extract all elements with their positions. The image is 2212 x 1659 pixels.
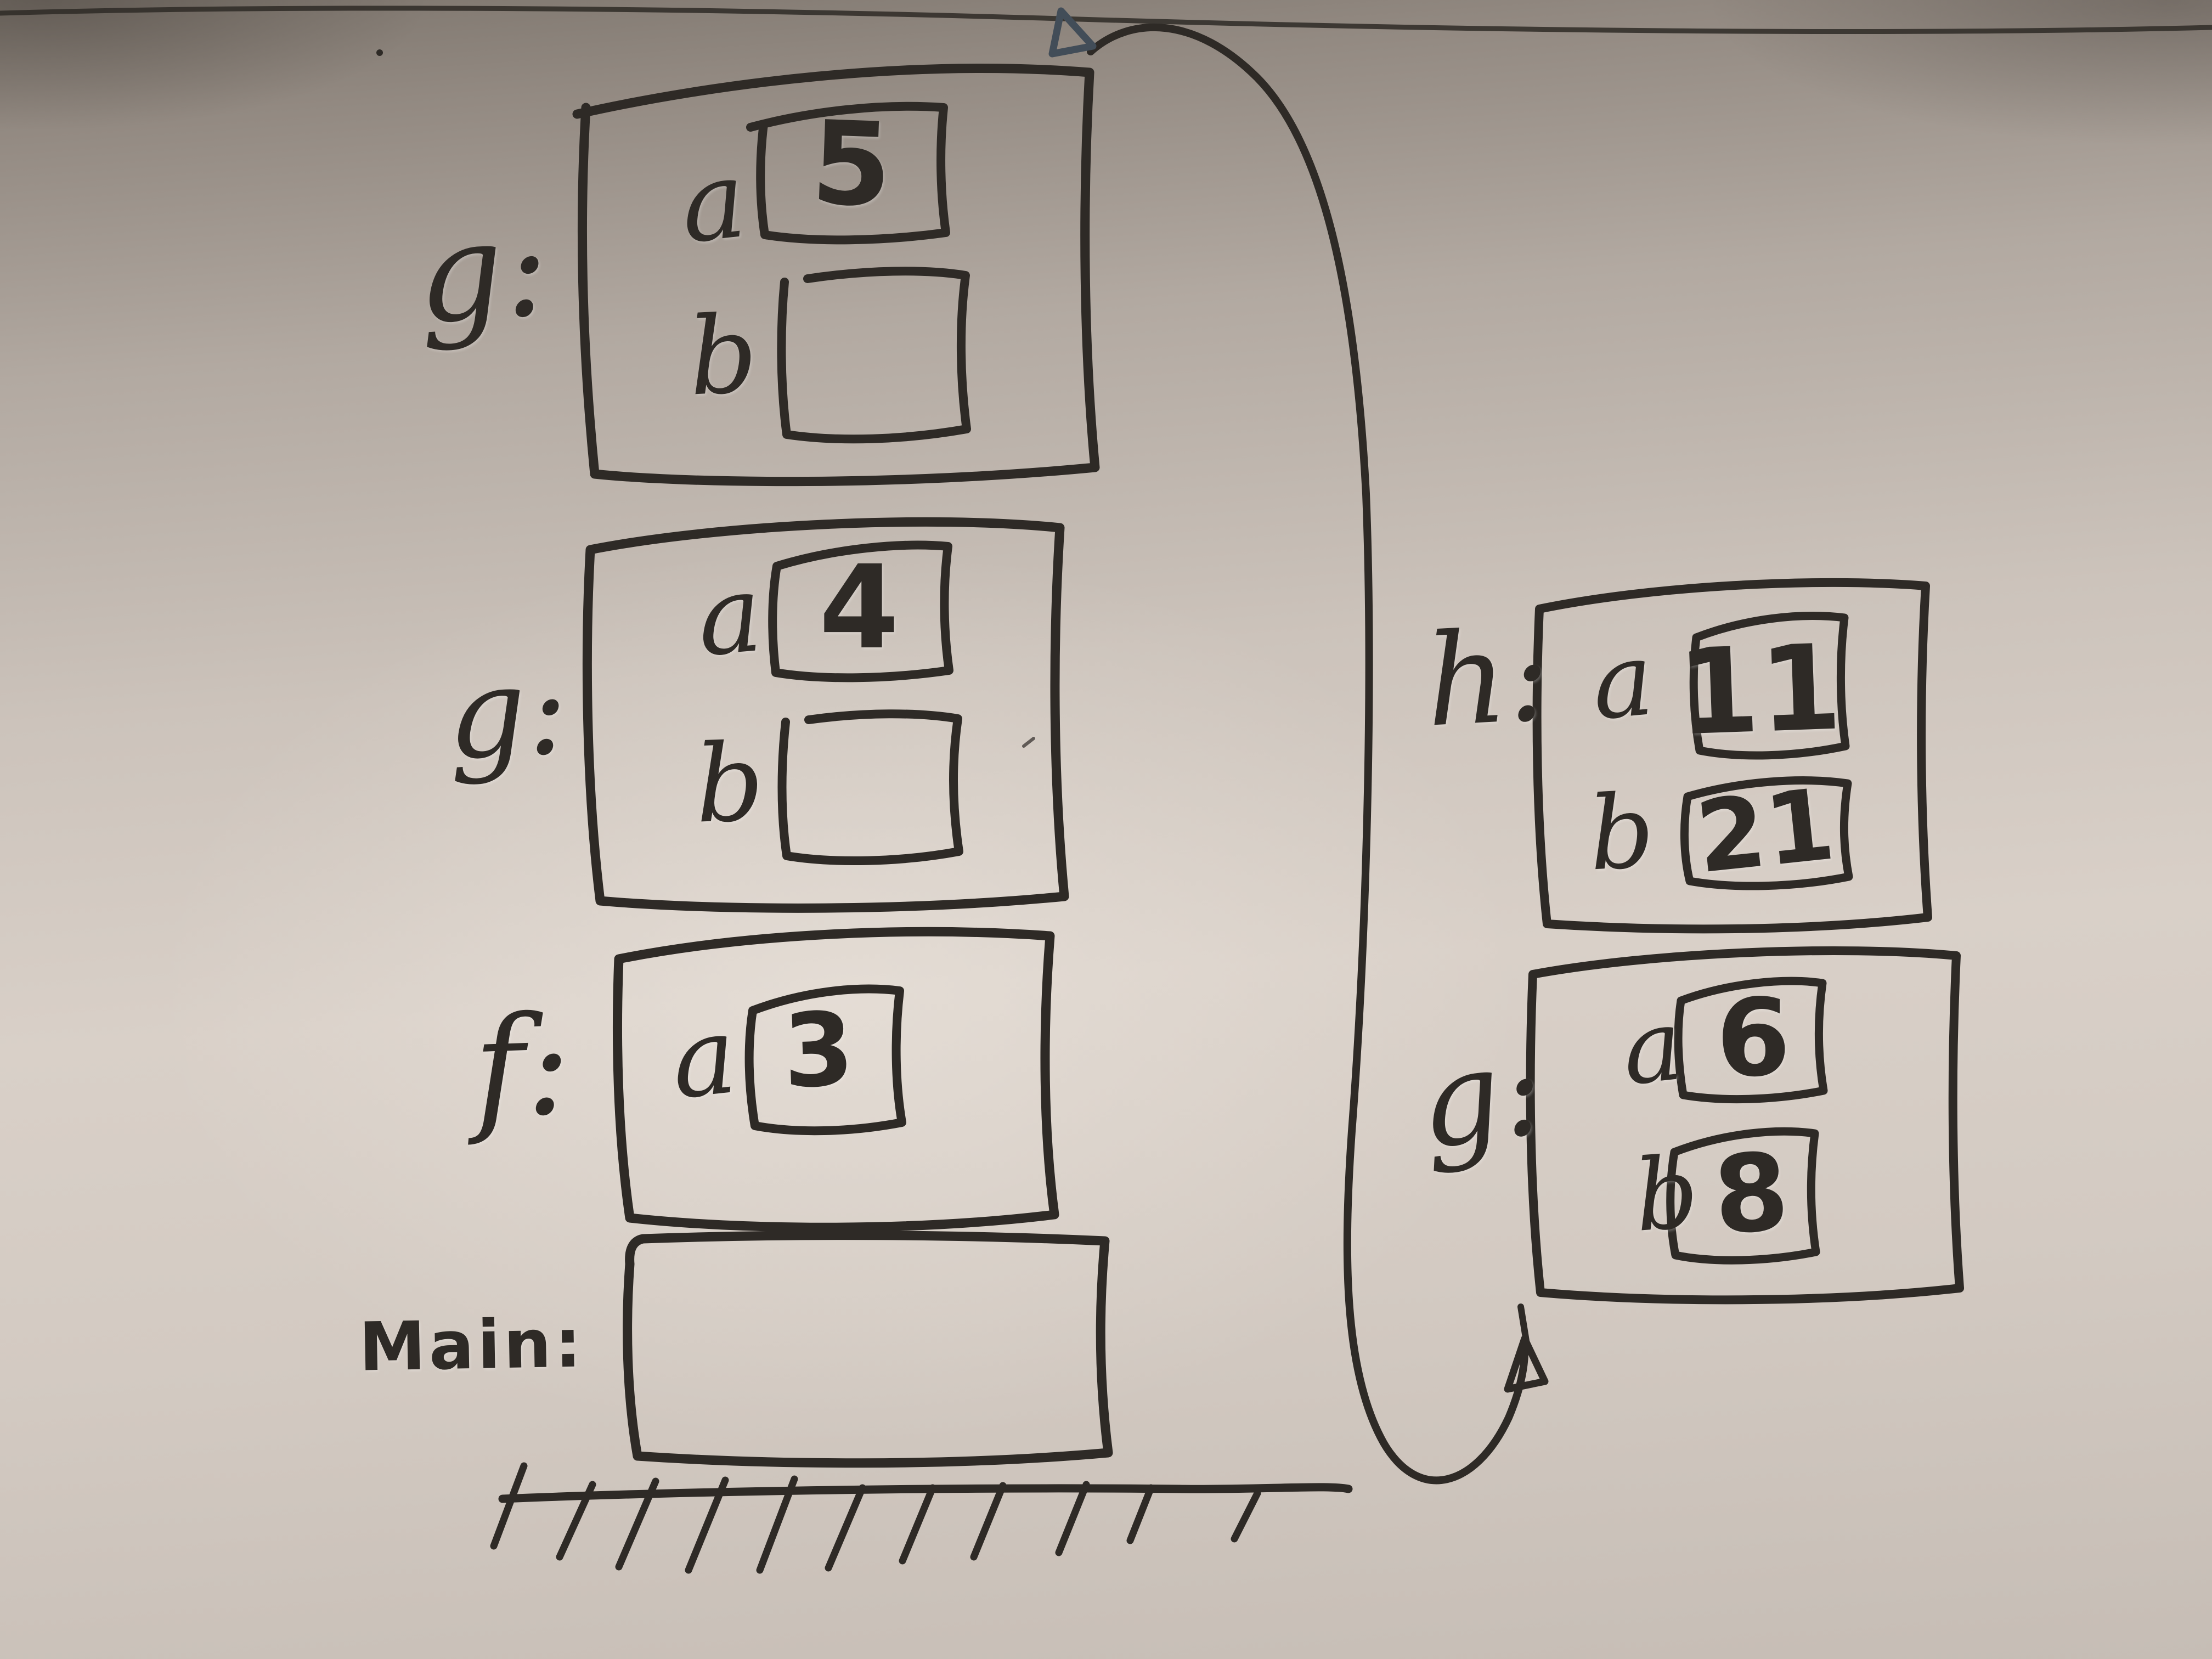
variable-name-g-top-a: a bbox=[676, 145, 751, 258]
arrow-curve bbox=[1091, 27, 1525, 1480]
stack-frame-label-f: f: bbox=[471, 997, 573, 1137]
variable-name-h-a: a bbox=[1588, 628, 1657, 735]
variable-name-g-right-a: a bbox=[1618, 996, 1687, 1100]
value-box-g-second-b-empty bbox=[782, 714, 960, 861]
ink-strokes-layer bbox=[0, 0, 2212, 1659]
stack-frame-label-g-top: g: bbox=[413, 200, 553, 343]
variable-value-g-right-a: 6 bbox=[1716, 985, 1791, 1092]
frame-outline-main bbox=[628, 1235, 1108, 1463]
variable-name-g-top-b: b bbox=[686, 300, 760, 410]
stack-frame-outlines bbox=[577, 69, 1108, 1463]
stack-frame-label-g-second: g: bbox=[444, 648, 571, 778]
value-box-g-top-b-empty bbox=[781, 271, 967, 439]
hatch-tick bbox=[1130, 1488, 1151, 1541]
variable-value-g-right-b: 8 bbox=[1711, 1138, 1792, 1250]
hatch-tick bbox=[974, 1486, 1003, 1557]
variable-name-g-right-b: b bbox=[1632, 1143, 1702, 1246]
hatch-tick bbox=[1059, 1485, 1086, 1553]
board-top-edge-line bbox=[0, 8, 2212, 32]
board-speck bbox=[1024, 738, 1034, 746]
arrowhead-tick bbox=[1521, 1307, 1526, 1341]
variable-name-g-second-b: b bbox=[693, 729, 766, 838]
variable-value-h-a: 11 bbox=[1675, 628, 1844, 752]
side-frame-label-g-right: g: bbox=[1412, 1026, 1551, 1168]
stack-frame-label-main: Main: bbox=[358, 1310, 585, 1380]
board-speck bbox=[376, 49, 383, 56]
variable-name-h-b: b bbox=[1587, 781, 1657, 885]
variable-name-f-a: a bbox=[667, 1001, 741, 1114]
variable-name-g-second-a: a bbox=[693, 560, 766, 672]
variable-value-g-second-a: 4 bbox=[819, 550, 899, 665]
variable-value-g-top-a: 5 bbox=[809, 106, 893, 224]
hatch-tick bbox=[494, 1466, 524, 1546]
whiteboard-photo: g: a 5 b g: a 4 b f: a 3 Main: h: a 11 b… bbox=[0, 0, 2212, 1659]
variable-value-h-b: 21 bbox=[1692, 775, 1839, 888]
hatch-tick bbox=[902, 1488, 933, 1561]
hatch-tick bbox=[1234, 1493, 1257, 1539]
side-frame-label-h: h: bbox=[1423, 613, 1553, 745]
ground-hatching bbox=[494, 1466, 1348, 1570]
variable-value-f-a: 3 bbox=[781, 998, 855, 1102]
hatch-tick bbox=[828, 1488, 862, 1568]
